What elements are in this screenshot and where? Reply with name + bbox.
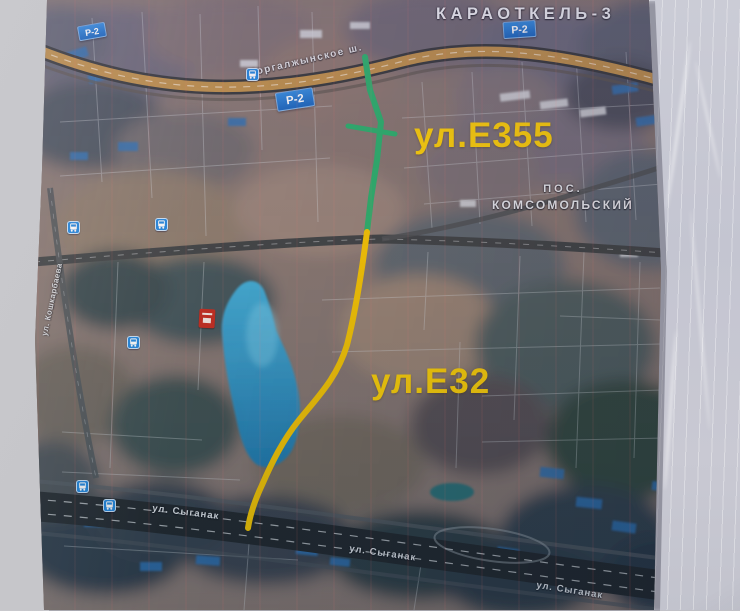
transit-stop-icon: [103, 499, 116, 512]
road-badge-r2: Р-2: [502, 20, 536, 39]
settlement-label: ПОС. КОМСОМОЛЬСКИЙ: [468, 181, 658, 213]
transit-stop-icon: [76, 480, 89, 493]
settlement-label-line2: КОМСОМОЛЬСКИЙ: [468, 197, 658, 213]
map-artwork: [0, 0, 740, 610]
transit-stop-icon: [67, 221, 80, 234]
street-label-e32: ул.Е32: [371, 362, 490, 402]
plastic-wrap-streak: [663, 330, 677, 490]
settlement-label-line1: ПОС.: [468, 181, 658, 197]
plastic-wrap-streak: [665, 41, 692, 210]
satellite-map-poster: КАРАОТКЕЛЬ-3 Р-2 Р-2 Р-2 Коргалжынское ш…: [0, 0, 740, 610]
transit-stop-icon: [155, 218, 168, 231]
street-label-e355: ул.Е355: [414, 116, 554, 156]
plastic-wrap-streak: [695, 61, 722, 179]
transit-stop-icon: [127, 336, 140, 349]
transit-stop-icon: [246, 68, 259, 81]
red-marker-icon: [199, 309, 216, 329]
photo-of-map-poster: КАРАОТКЕЛЬ-3 Р-2 Р-2 Р-2 Коргалжынское ш…: [0, 0, 740, 610]
plastic-wrap-streak: [689, 210, 710, 429]
